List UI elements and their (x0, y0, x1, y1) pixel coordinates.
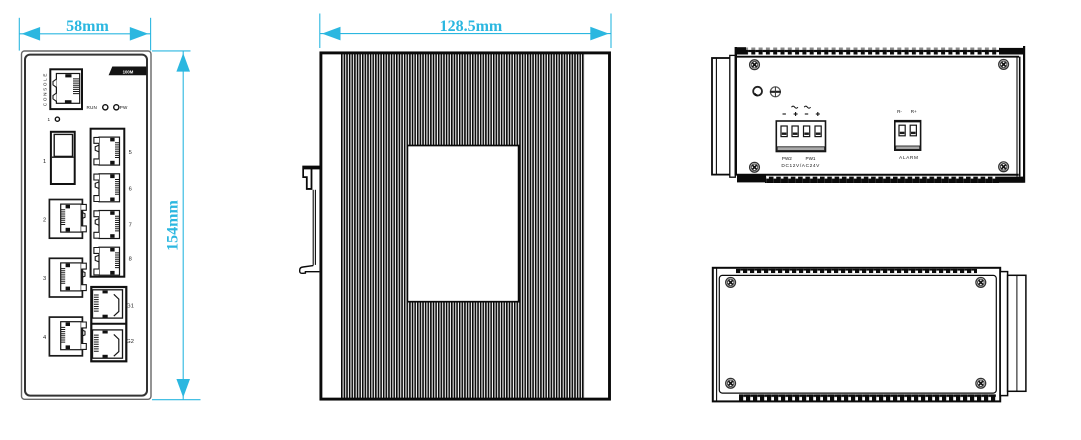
svg-text:CONSOLE: CONSOLE (43, 72, 48, 106)
svg-text:8: 8 (129, 256, 132, 262)
svg-text:1: 1 (43, 159, 46, 165)
svg-text:100M: 100M (123, 69, 134, 74)
svg-text:1: 1 (48, 117, 51, 122)
svg-text:DC12V/AC24V: DC12V/AC24V (781, 163, 820, 169)
svg-text:ALARM: ALARM (899, 155, 919, 161)
svg-text:154mm: 154mm (165, 200, 182, 251)
svg-text:7: 7 (129, 222, 132, 228)
svg-text:5: 5 (129, 150, 132, 156)
svg-text:RUN: RUN (87, 105, 98, 110)
svg-text:4: 4 (43, 335, 46, 341)
svg-text:3: 3 (43, 276, 46, 282)
svg-text:PW2: PW2 (782, 156, 792, 161)
svg-text:2: 2 (43, 217, 46, 223)
svg-text:58mm: 58mm (66, 18, 109, 35)
svg-text:G2: G2 (126, 339, 134, 345)
svg-text:G1: G1 (126, 303, 134, 309)
svg-text:128.5mm: 128.5mm (440, 18, 503, 35)
svg-text:6: 6 (129, 187, 132, 193)
svg-text:PW: PW (120, 105, 128, 110)
svg-text:R-: R- (897, 109, 902, 114)
svg-text:PW1: PW1 (806, 156, 816, 161)
svg-text:R+: R+ (911, 109, 917, 114)
